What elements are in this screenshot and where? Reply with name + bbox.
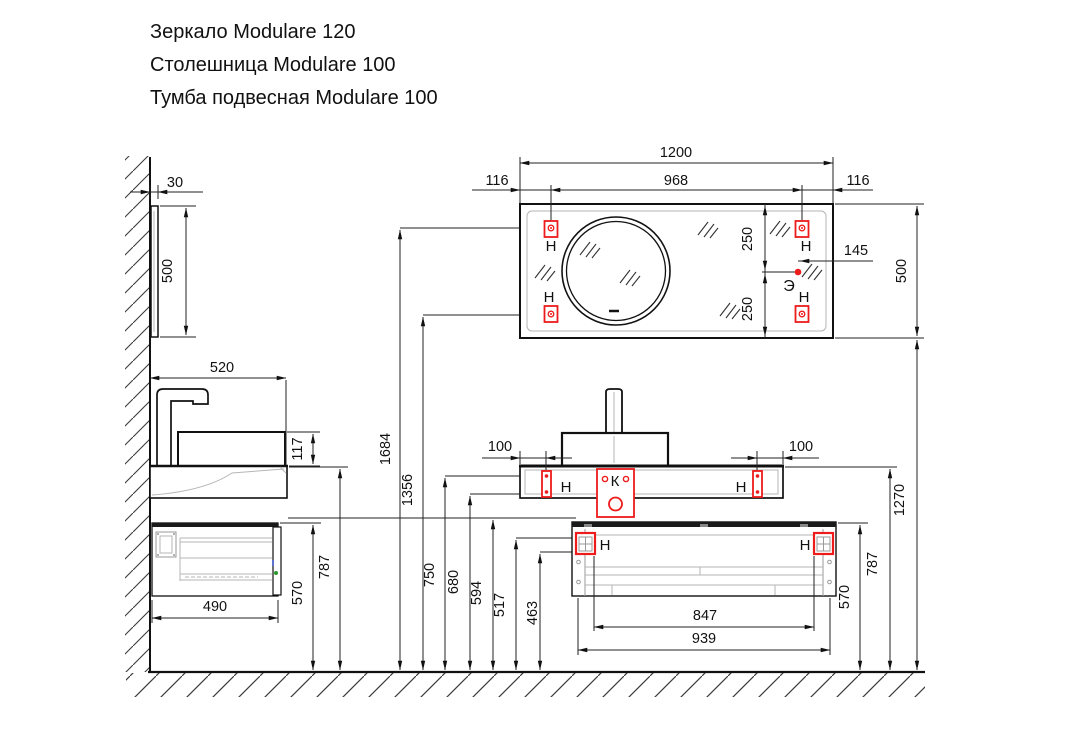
cabinet-side-view: 490: [152, 523, 281, 623]
dim-cabinet-side-width: 490: [203, 599, 227, 615]
dim-mirror-top-mount-height: 1684: [378, 433, 394, 465]
mount-label: Н: [546, 238, 557, 255]
wall-hatch: [125, 156, 150, 672]
mount-label: Н: [801, 238, 812, 255]
dim-mirror-mount-inset-right: 116: [846, 173, 869, 189]
electric-connection-icon: [795, 269, 802, 276]
mount-label: Н: [736, 479, 747, 496]
dim-electric-offset: 145: [844, 243, 868, 259]
mount-label: Н: [544, 289, 555, 306]
dim-counter-height-right: 787: [865, 552, 881, 576]
mount-label: Н: [561, 479, 572, 496]
dim-counter-mount-inset-right: 100: [789, 439, 813, 455]
dim-mirror-bottom-height: 1270: [892, 484, 908, 516]
dim-cabinet-width: 939: [692, 631, 716, 647]
electric-label: Э: [783, 278, 795, 295]
dim-counter-mount-top: 750: [422, 563, 438, 587]
dim-cabinet-mount-bottom: 463: [525, 601, 541, 625]
technical-drawing-canvas: Зеркало Modulare 120 Столешница Modulare…: [0, 0, 1077, 730]
mount-label: Н: [600, 537, 611, 554]
drain-label: К: [611, 473, 620, 490]
dim-cabinet-top-height-right: 570: [837, 585, 853, 609]
cabinet-front-view: Н Н 847 939: [572, 522, 836, 655]
dim-mirror-mount-offset-bottom: 250: [740, 297, 756, 321]
dim-basin-height: 117: [290, 437, 306, 460]
dim-mirror-side-height: 500: [160, 259, 176, 283]
countertop-front-view: 100 100 Н Н К: [482, 389, 819, 517]
dim-cabinet-top-height-left: 570: [290, 581, 306, 605]
dim-mirror-mount-inset-left: 116: [485, 173, 508, 189]
left-height-dimensions: 570 787: [280, 467, 348, 670]
dim-mirror-side-thickness: 30: [167, 175, 183, 191]
dim-counter-side-width: 520: [210, 360, 234, 376]
dim-cabinet-rail-height: 594: [469, 581, 485, 605]
dim-mirror-bottom-mount-height: 1356: [400, 474, 416, 506]
drawing: 30 500 520 117: [0, 0, 1077, 730]
dim-counter-mount-bottom: 680: [446, 570, 462, 594]
dim-cabinet-mount-top: 517: [492, 593, 508, 617]
countertop-side-view: 520 117: [149, 360, 320, 498]
dim-counter-height-left: 787: [317, 555, 333, 579]
floor-hatch: [126, 672, 925, 697]
mount-label: Н: [800, 537, 811, 554]
basin-front: [562, 433, 668, 466]
dim-mirror-width: 1200: [660, 145, 692, 161]
dim-cabinet-mount-spacing: 847: [693, 608, 717, 624]
dim-counter-mount-inset-left: 100: [488, 439, 512, 455]
basin-side: [178, 432, 285, 466]
dim-mirror-mount-offset-top: 250: [740, 227, 756, 251]
mount-label: Н: [799, 289, 810, 306]
mirror-front-view: 1200 116 968 116 250 250 Э 145: [472, 145, 873, 338]
dim-mirror-mount-spacing: 968: [664, 173, 688, 189]
dim-mirror-height: 500: [894, 259, 910, 283]
